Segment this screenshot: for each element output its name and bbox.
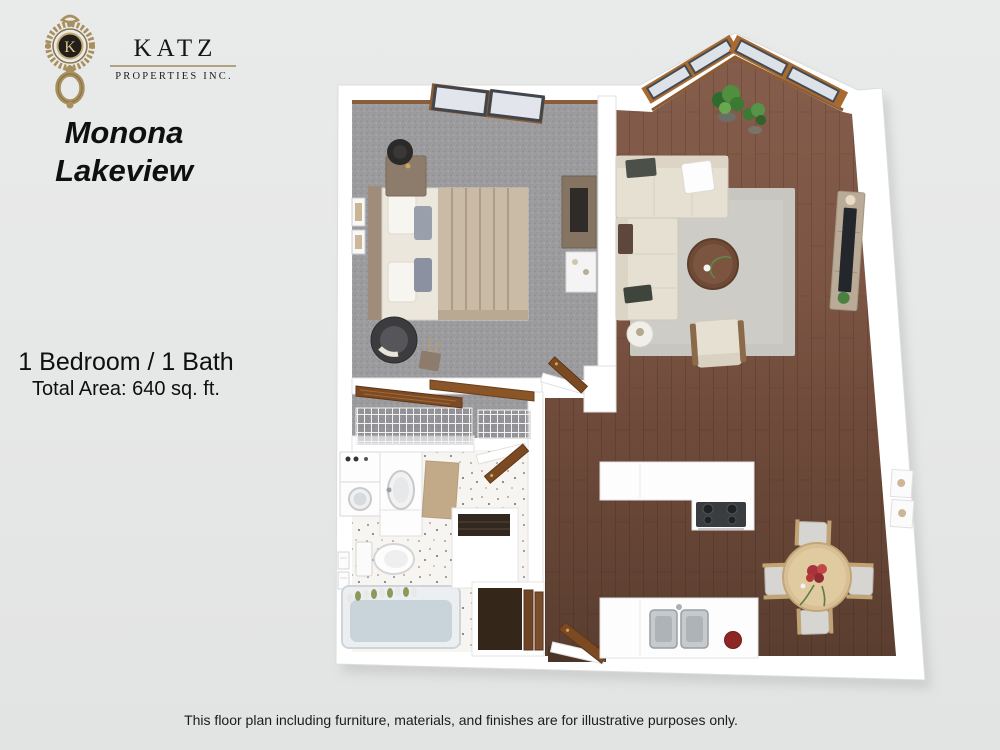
vanity-sink	[380, 452, 422, 536]
armchair	[690, 318, 747, 368]
bedroom-living-wall	[598, 96, 616, 412]
wall-end-cap	[584, 366, 616, 412]
floor-plan-group	[336, 33, 931, 689]
floor-plan-flyer: K KATZ PROPERTIES INC. Monona Lakeview 1…	[0, 0, 1000, 750]
kitchen-island	[600, 598, 758, 658]
wall-art-frames	[352, 198, 365, 254]
dining-table	[783, 543, 851, 611]
linen-closet	[452, 508, 518, 588]
stove-cooktop	[696, 502, 746, 527]
red-bowl	[725, 632, 742, 649]
washer-dryer	[340, 452, 380, 516]
side-table	[627, 321, 653, 347]
coffee-table	[688, 239, 738, 289]
bedroom-dresser	[562, 176, 596, 292]
bathtub	[342, 586, 460, 648]
floor-plan-image	[0, 0, 1000, 750]
toilet	[356, 542, 414, 576]
bed	[368, 186, 528, 320]
entry-closet	[472, 582, 544, 656]
